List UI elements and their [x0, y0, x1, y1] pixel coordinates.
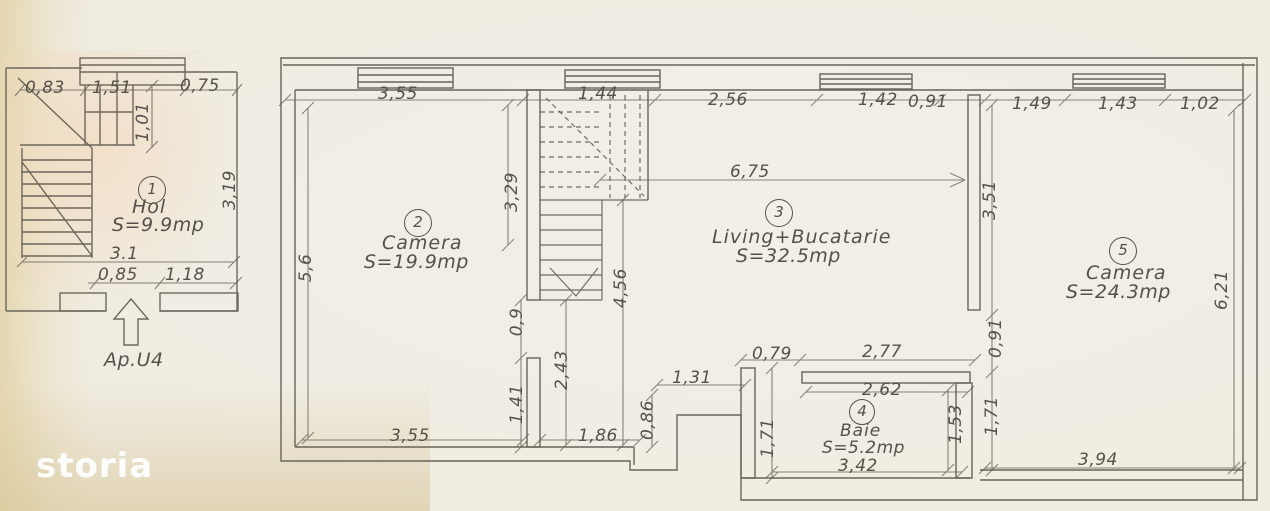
- dim-243: 2,43: [552, 340, 572, 400]
- dim-131: 1,31: [672, 368, 712, 388]
- dim-079: 0,79: [752, 344, 792, 364]
- dim-675: 6,75: [730, 162, 770, 182]
- dim-141: 1,41: [507, 374, 527, 434]
- dim-456: 4,56: [611, 258, 631, 318]
- dim-262: 2,62: [862, 380, 902, 400]
- dim-top-102: 1,02: [1180, 94, 1220, 114]
- dim-top-142: 1,42: [858, 90, 898, 110]
- room-number-camera5: 5: [1109, 237, 1137, 265]
- dim-top-144: 1,44: [578, 84, 618, 104]
- dim-hall-bottom-1: 0,85: [98, 265, 138, 285]
- dim-hall-top-3: 0,75: [180, 76, 220, 96]
- dim-351: 3,51: [980, 170, 1000, 230]
- dim-621: 6,21: [1212, 260, 1232, 320]
- dim-086: 0,86: [638, 390, 658, 450]
- dim-329: 3,29: [502, 162, 522, 222]
- dim-394: 3,94: [1078, 450, 1118, 470]
- dim-171-right: 1,71: [982, 386, 1002, 446]
- dim-top-256: 2,56: [708, 90, 748, 110]
- dim-hall-top-1: 0,83: [25, 78, 65, 98]
- room-number-living: 3: [765, 199, 793, 227]
- dim-left-56: 5,6: [296, 238, 316, 298]
- dim-bottom-355: 3,55: [390, 426, 430, 446]
- dim-hall-width: 3.1: [110, 244, 139, 264]
- dim-top-355: 3,55: [378, 84, 418, 104]
- dim-153: 1,53: [946, 394, 966, 454]
- dim-342: 3,42: [838, 456, 878, 476]
- dim-09: 0,9: [507, 292, 527, 352]
- dim-186: 1,86: [578, 426, 618, 446]
- room-area-living: S=32.5mp: [736, 245, 841, 267]
- room-area-hol: S=9.9mp: [112, 214, 204, 236]
- storia-watermark: storia: [36, 446, 153, 486]
- room-area-camera2: S=19.9mp: [364, 251, 469, 273]
- room-area-baie: S=5.2mp: [822, 438, 905, 458]
- dim-277: 2,77: [862, 342, 902, 362]
- dim-top-143: 1,43: [1098, 94, 1138, 114]
- floorplan-scan: 0,83 1,51 0,75 1,01 3,19 3.1 0,85 1,18 1…: [0, 0, 1270, 511]
- dim-091-right: 0,91: [986, 308, 1006, 368]
- entrance-label: Ap.U4: [104, 350, 164, 370]
- dim-hall-window-height: 1,01: [133, 92, 153, 152]
- dim-top-149: 1,49: [1012, 94, 1052, 114]
- dim-hall-bottom-2: 1,18: [165, 265, 205, 285]
- dim-hall-right: 3,19: [220, 160, 240, 220]
- dim-171-left: 1,71: [758, 408, 778, 468]
- dim-hall-top-2: 1,51: [92, 78, 132, 98]
- room-area-camera5: S=24.3mp: [1066, 281, 1171, 303]
- dim-top-091: 0,91: [908, 92, 948, 112]
